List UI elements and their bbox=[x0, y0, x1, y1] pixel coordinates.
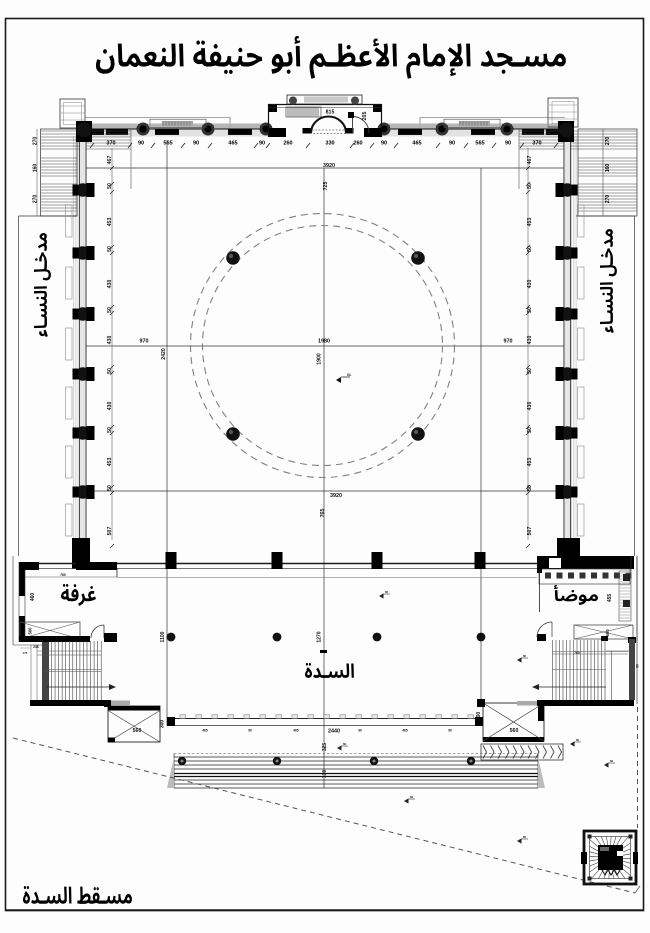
svg-text:60: 60 bbox=[410, 795, 414, 799]
svg-text:175: 175 bbox=[23, 651, 28, 655]
svg-text:50: 50 bbox=[107, 485, 113, 491]
svg-text:90: 90 bbox=[505, 141, 511, 147]
svg-text:2420: 2420 bbox=[161, 348, 167, 360]
svg-text:465: 465 bbox=[402, 729, 408, 733]
svg-text:465: 465 bbox=[412, 141, 421, 147]
svg-text:560: 560 bbox=[510, 728, 519, 734]
svg-text:460: 460 bbox=[30, 593, 36, 602]
svg-text:430: 430 bbox=[107, 280, 113, 289]
svg-text:430: 430 bbox=[527, 336, 533, 345]
svg-text:815: 815 bbox=[326, 110, 335, 116]
svg-text:970: 970 bbox=[140, 339, 149, 345]
svg-text:325: 325 bbox=[322, 743, 328, 752]
svg-text:430: 430 bbox=[107, 402, 113, 411]
svg-text:430: 430 bbox=[527, 402, 533, 411]
svg-text:725: 725 bbox=[323, 182, 329, 191]
svg-text:160: 160 bbox=[605, 164, 611, 173]
svg-text:430: 430 bbox=[527, 280, 533, 289]
svg-text:3920: 3920 bbox=[323, 163, 335, 169]
svg-text:453: 453 bbox=[107, 218, 113, 227]
svg-text:60: 60 bbox=[636, 664, 640, 668]
svg-text:260: 260 bbox=[353, 141, 362, 147]
svg-text:465: 465 bbox=[293, 729, 299, 733]
svg-text:760: 760 bbox=[574, 651, 580, 655]
svg-text:453: 453 bbox=[107, 458, 113, 467]
svg-text:160: 160 bbox=[33, 164, 39, 173]
svg-text:760: 760 bbox=[60, 573, 66, 577]
svg-text:90: 90 bbox=[193, 141, 199, 147]
svg-text:430: 430 bbox=[107, 336, 113, 345]
svg-text:60: 60 bbox=[385, 590, 389, 594]
svg-text:50: 50 bbox=[527, 485, 533, 491]
svg-text:50: 50 bbox=[527, 427, 533, 433]
svg-text:270: 270 bbox=[605, 137, 611, 146]
svg-text:465: 465 bbox=[228, 141, 237, 147]
svg-text:90: 90 bbox=[138, 141, 144, 147]
svg-text:300: 300 bbox=[160, 720, 166, 729]
svg-text:90: 90 bbox=[358, 729, 362, 733]
svg-text:90: 90 bbox=[381, 141, 387, 147]
svg-text:330: 330 bbox=[325, 141, 334, 147]
svg-text:467: 467 bbox=[107, 156, 113, 165]
svg-text:50: 50 bbox=[107, 307, 113, 313]
svg-text:765: 765 bbox=[320, 509, 326, 518]
svg-text:236: 236 bbox=[33, 645, 39, 649]
svg-text:2440: 2440 bbox=[328, 729, 340, 735]
svg-text:60: 60 bbox=[576, 738, 580, 742]
svg-text:260: 260 bbox=[283, 141, 292, 147]
svg-text:GL: GL bbox=[347, 373, 351, 377]
svg-text:60: 60 bbox=[610, 759, 614, 763]
svg-text:270: 270 bbox=[33, 195, 39, 204]
svg-text:453: 453 bbox=[527, 218, 533, 227]
svg-text:205: 205 bbox=[362, 112, 368, 121]
svg-text:370: 370 bbox=[106, 141, 115, 147]
svg-text:270: 270 bbox=[33, 137, 39, 146]
svg-text:970: 970 bbox=[504, 339, 513, 345]
svg-text:565: 565 bbox=[475, 141, 484, 147]
svg-text:1270: 1270 bbox=[317, 631, 323, 642]
svg-text:90: 90 bbox=[248, 729, 252, 733]
svg-text:270: 270 bbox=[605, 195, 611, 204]
svg-text:465: 465 bbox=[202, 729, 208, 733]
svg-text:370: 370 bbox=[532, 141, 541, 147]
svg-text:60: 60 bbox=[523, 835, 527, 839]
svg-text:507: 507 bbox=[527, 527, 533, 536]
svg-text:500: 500 bbox=[28, 627, 33, 635]
svg-text:1980: 1980 bbox=[318, 339, 330, 345]
svg-text:560: 560 bbox=[133, 728, 142, 734]
svg-text:60: 60 bbox=[523, 654, 527, 658]
svg-text:3920: 3920 bbox=[330, 493, 342, 499]
svg-text:455: 455 bbox=[607, 594, 613, 603]
svg-text:50: 50 bbox=[527, 307, 533, 313]
svg-text:600: 600 bbox=[605, 629, 610, 637]
svg-text:1900: 1900 bbox=[317, 353, 323, 365]
svg-text:300: 300 bbox=[476, 712, 482, 721]
svg-text:507: 507 bbox=[107, 527, 113, 536]
svg-text:565: 565 bbox=[163, 141, 172, 147]
svg-text:50: 50 bbox=[107, 427, 113, 433]
svg-text:1100: 1100 bbox=[160, 631, 166, 642]
svg-text:453: 453 bbox=[527, 458, 533, 467]
svg-text:90: 90 bbox=[259, 141, 265, 147]
svg-text:60: 60 bbox=[343, 742, 347, 746]
svg-text:90: 90 bbox=[448, 729, 452, 733]
svg-text:467: 467 bbox=[527, 156, 533, 165]
svg-text:90: 90 bbox=[449, 141, 455, 147]
